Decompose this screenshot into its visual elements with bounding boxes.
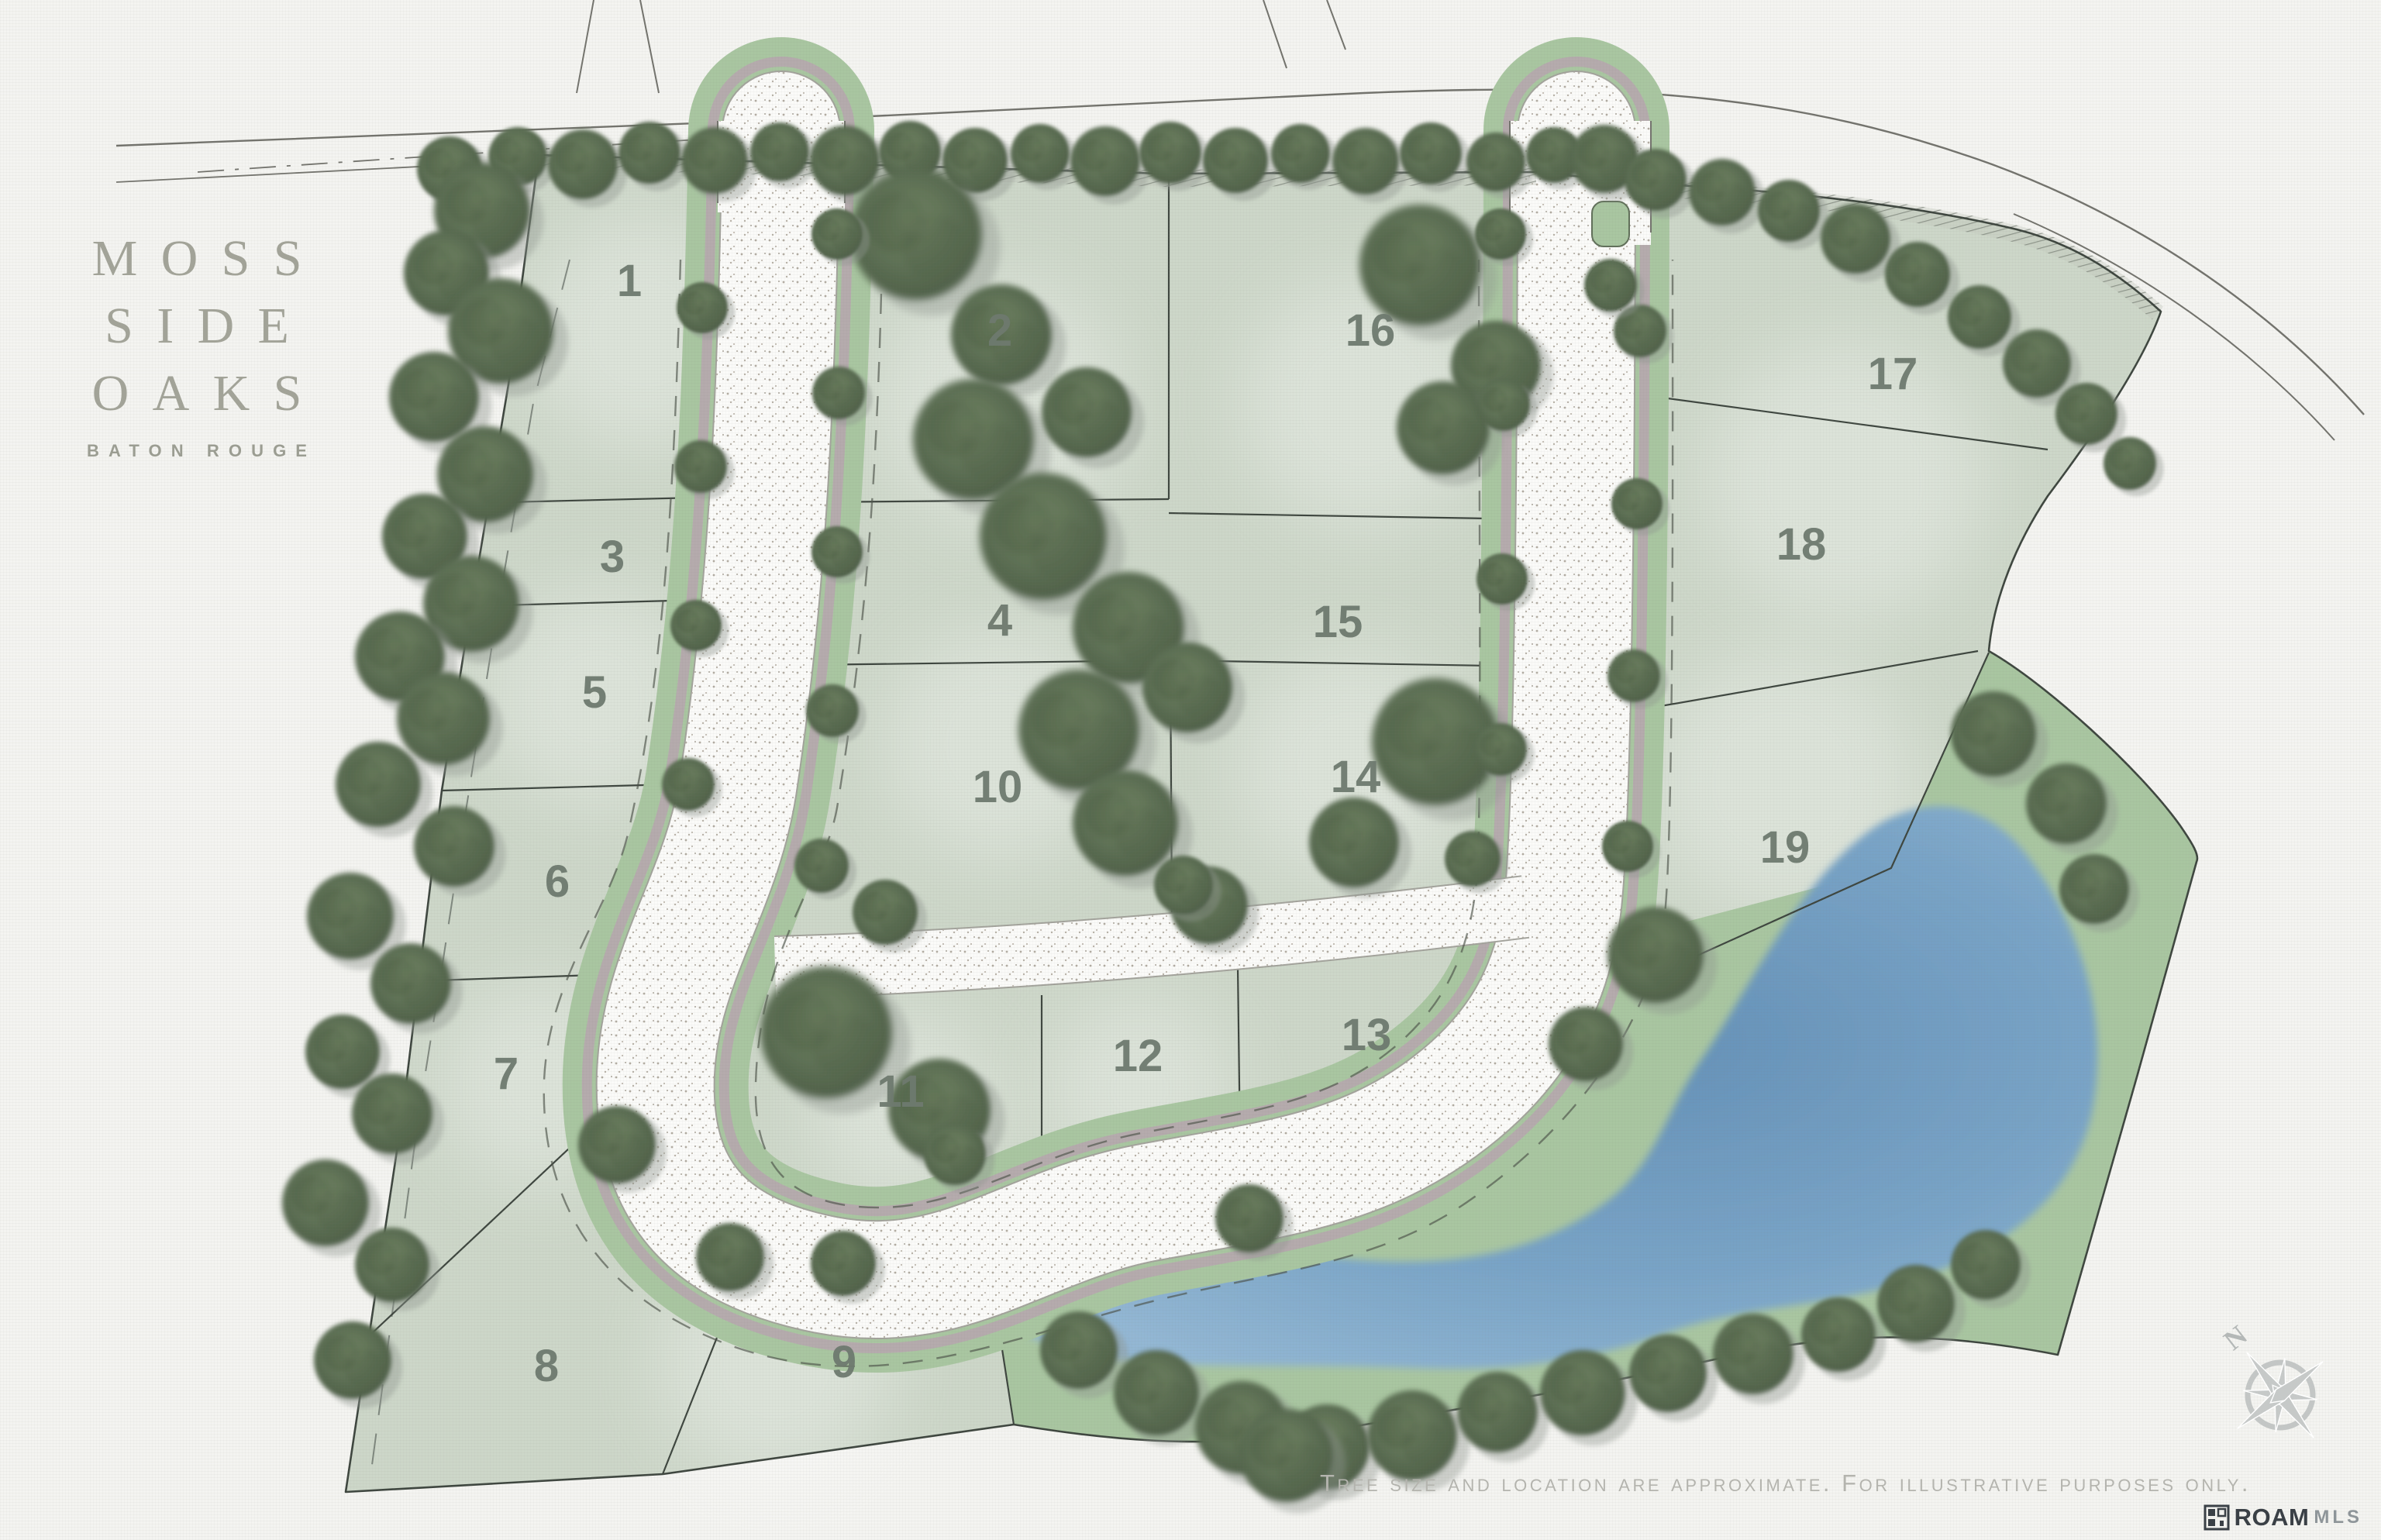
logo-brand-text: ROAM — [2235, 1504, 2310, 1531]
lot-label-19: 19 — [1760, 822, 1811, 873]
entrance-median-island — [1592, 202, 1629, 246]
lot-label-18: 18 — [1776, 519, 1827, 570]
subtitle-city: BATON ROUGE — [67, 441, 336, 461]
lot-label-3: 3 — [600, 532, 625, 582]
lot-label-9: 9 — [832, 1337, 856, 1387]
lot-label-13: 13 — [1342, 1010, 1392, 1060]
site-plan-map: 1 2 3 4 5 6 7 8 9 10 11 12 13 14 15 16 1… — [0, 0, 2381, 1540]
lot-label-6: 6 — [545, 856, 570, 907]
title-line-3: OAKS — [67, 360, 350, 427]
lot-label-2: 2 — [987, 305, 1012, 356]
lot-label-12: 12 — [1113, 1031, 1163, 1081]
roam-logo-icon — [2204, 1504, 2230, 1531]
lot-label-10: 10 — [973, 762, 1023, 812]
lot-label-1: 1 — [617, 256, 642, 306]
lot-label-8: 8 — [534, 1341, 559, 1391]
compass-north-label: N — [2218, 1319, 2253, 1356]
title-block: MOSS SIDE OAKS BATON ROUGE — [67, 225, 327, 461]
title-line-2: SIDE — [67, 292, 350, 360]
disclaimer-text: Tree size and location are approximate. … — [1320, 1469, 2251, 1497]
lot-label-16: 16 — [1346, 305, 1396, 356]
mls-logo: ROAMMLS — [2204, 1504, 2362, 1531]
lot-label-14: 14 — [1331, 752, 1381, 802]
north-entry-stub-right — [1263, 0, 1346, 68]
lot-label-7: 7 — [494, 1049, 519, 1099]
logo-suffix-text: MLS — [2314, 1507, 2362, 1528]
compass-rose-icon: N — [2203, 1308, 2358, 1471]
lot-label-17: 17 — [1868, 349, 1918, 399]
tree-icon — [2104, 437, 2164, 496]
lot-label-11: 11 — [877, 1066, 924, 1117]
lot-label-15: 15 — [1313, 597, 1363, 647]
north-entry-stub-left — [577, 0, 659, 93]
lot-label-5: 5 — [582, 667, 607, 718]
lot-label-4: 4 — [987, 595, 1012, 646]
title-line-1: MOSS — [67, 225, 350, 292]
